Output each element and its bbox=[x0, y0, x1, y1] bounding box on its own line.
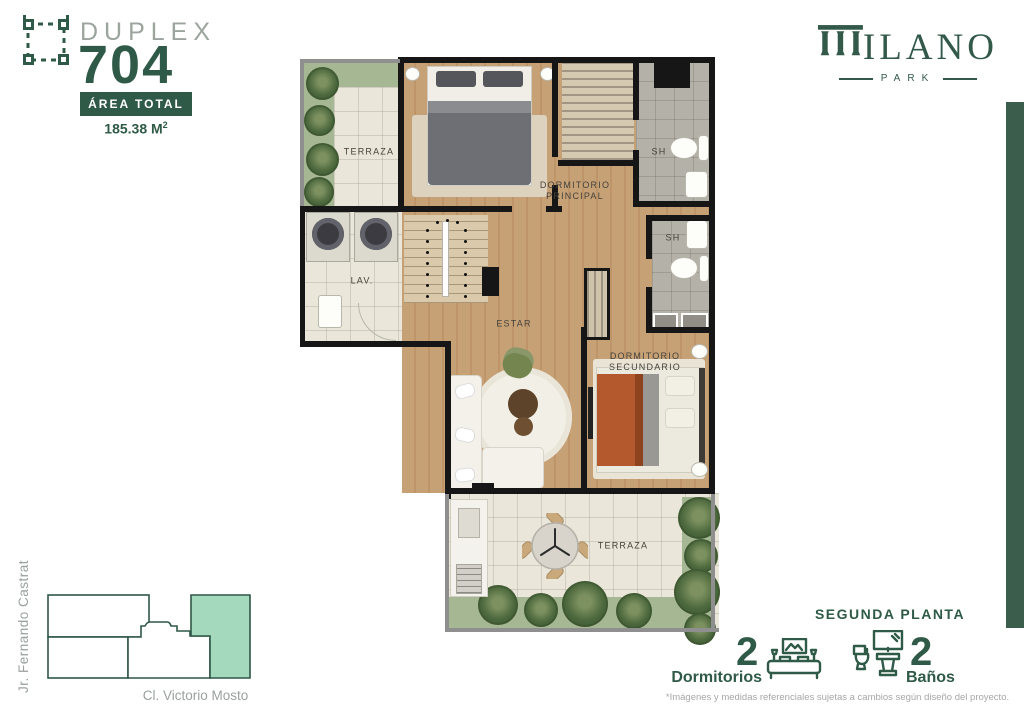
wall bbox=[633, 62, 639, 120]
wall bbox=[581, 327, 587, 493]
bathrooms-stat: 2 Baños bbox=[852, 630, 987, 688]
nightstand bbox=[405, 67, 420, 81]
bedrooms-label: Dormitorios bbox=[660, 669, 762, 687]
floor-level-label: SEGUNDA PLANTA bbox=[765, 606, 1015, 622]
label-sh2: SH bbox=[666, 232, 681, 243]
laundry-sink bbox=[318, 295, 342, 328]
park-line-right bbox=[943, 78, 977, 80]
wall bbox=[398, 57, 404, 211]
terrace-wall bbox=[445, 494, 449, 632]
side-table bbox=[514, 417, 533, 436]
palm-icon bbox=[616, 593, 652, 629]
palm-icon bbox=[304, 105, 335, 136]
principal-bed bbox=[427, 66, 532, 186]
bed-icon bbox=[764, 638, 824, 684]
wall bbox=[472, 483, 494, 494]
tv-unit bbox=[588, 387, 593, 439]
bath-icon bbox=[852, 630, 904, 684]
coffee-table bbox=[508, 389, 538, 419]
palm-icon bbox=[562, 581, 608, 627]
label-terraza-bottom: TERRAZA bbox=[598, 540, 648, 551]
terrace-wall bbox=[711, 494, 715, 632]
terrace-wall bbox=[300, 59, 400, 63]
label-sh1: SH bbox=[652, 146, 667, 157]
wall bbox=[646, 215, 652, 259]
bathrooms-count: 2 bbox=[910, 634, 932, 670]
plan-outline-icon bbox=[18, 14, 74, 70]
floor-plan: TERRAZA DORMITORIO PRINCIPAL SH LAV. EST… bbox=[300, 57, 720, 635]
label-dormitorio-principal: DORMITORIO PRINCIPAL bbox=[540, 180, 610, 203]
disclaimer-text: *Imágenes y medidas referenciales sujeta… bbox=[655, 692, 1020, 703]
toilet-bowl bbox=[670, 257, 698, 279]
wall bbox=[649, 327, 715, 333]
bathrooms-label: Baños bbox=[906, 669, 955, 687]
secundario-bed bbox=[596, 367, 704, 473]
wall bbox=[445, 341, 451, 499]
wall bbox=[300, 206, 305, 347]
palm-icon bbox=[524, 593, 558, 627]
label-estar: ESTAR bbox=[496, 318, 531, 329]
brand-logo: ILANO PARK bbox=[818, 20, 998, 84]
closet-secundario bbox=[584, 268, 610, 340]
nightstand bbox=[691, 344, 708, 359]
washer bbox=[306, 212, 350, 262]
area-value: 185.38 M2 bbox=[80, 120, 192, 137]
wall bbox=[709, 57, 715, 494]
unit-number: 704 bbox=[78, 38, 174, 92]
wall bbox=[552, 62, 558, 157]
dryer bbox=[354, 212, 398, 262]
tv-unit bbox=[482, 267, 499, 296]
label-lavanderia: LAV. bbox=[351, 275, 374, 286]
brand-name: ILANO bbox=[863, 32, 998, 65]
toilet-tank bbox=[698, 135, 709, 161]
street-label-left: Jr. Fernando Castrat bbox=[16, 548, 31, 704]
nightstand bbox=[691, 462, 708, 477]
brand-subtitle: PARK bbox=[881, 73, 936, 84]
wall bbox=[300, 206, 404, 212]
wall bbox=[633, 201, 715, 207]
wall bbox=[302, 341, 450, 347]
label-dormitorio-secundario: DORMITORIO SECUNDARIO bbox=[609, 351, 681, 374]
palm-icon bbox=[304, 177, 334, 207]
sink bbox=[685, 171, 708, 198]
park-line-left bbox=[839, 78, 873, 80]
toilet-tank bbox=[699, 255, 709, 282]
location-key-map bbox=[47, 594, 253, 682]
toilet-bowl bbox=[670, 137, 698, 159]
wall bbox=[404, 206, 512, 212]
terrace-wall bbox=[300, 59, 304, 206]
bedrooms-stat: 2 Dormitorios bbox=[660, 632, 830, 688]
closet-principal bbox=[562, 62, 634, 160]
sink bbox=[686, 220, 708, 249]
wall bbox=[646, 215, 715, 221]
sofa bbox=[448, 375, 482, 493]
label-terraza-top: TERRAZA bbox=[344, 146, 394, 157]
grill-counter bbox=[450, 499, 488, 597]
accent-side-bar bbox=[1006, 102, 1024, 628]
wall bbox=[633, 150, 639, 203]
area-total-badge: ÁREA TOTAL bbox=[80, 92, 192, 116]
shower-block bbox=[654, 62, 690, 88]
palm-icon bbox=[306, 143, 339, 176]
dining-table bbox=[522, 513, 588, 579]
wall bbox=[558, 160, 638, 166]
stairs bbox=[404, 215, 488, 303]
bedrooms-count: 2 bbox=[736, 634, 758, 670]
street-label-bottom: Cl. Victorio Mosto bbox=[108, 688, 283, 703]
column-m-icon bbox=[818, 20, 863, 65]
brochure-page: DUPLEX 704 ÁREA TOTAL 185.38 M2 ILANO PA… bbox=[0, 0, 1024, 717]
palm-icon bbox=[306, 67, 339, 100]
